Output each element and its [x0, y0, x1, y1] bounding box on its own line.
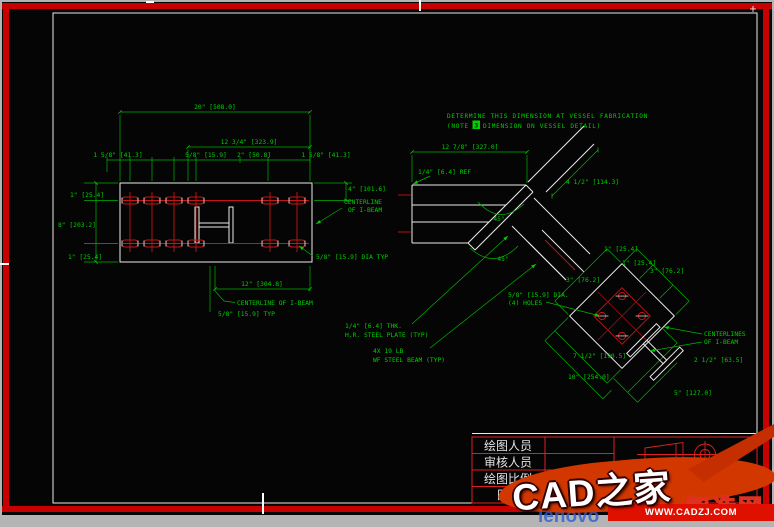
- cad-application-window: 20" [508.0] 12 3/4" [323.9] 1 5/8" [41.3…: [0, 0, 774, 527]
- dim-label: 2 1/2" [63.5]: [694, 357, 743, 364]
- dim-label: 1" [25.4]: [622, 260, 656, 267]
- hole-note: 5/8" [15.9] DIA TYP: [316, 254, 388, 261]
- title-row-drafter: 绘图人员: [484, 438, 532, 453]
- dim-label: 12" [304.8]: [241, 281, 283, 288]
- dim-label: 3" [76.2]: [650, 268, 684, 275]
- dim-label: 4" [101.6]: [348, 186, 386, 193]
- dim-label: 1 5/8" [41.3]: [301, 152, 350, 159]
- ref-note: 1/4" [6.4] REF: [418, 169, 471, 176]
- centerline-label: CENTERLINE: [344, 199, 382, 206]
- viewport-tick-left: [0, 263, 9, 265]
- dim-label: 4 1/2" [114.3]: [566, 179, 619, 186]
- typ-note: 5/8" [15.9] TYP: [218, 311, 275, 318]
- fabrication-note: DETERMINE THIS DIMENSION AT VESSEL FABRI…: [447, 113, 648, 120]
- title-row-date: 日期: [496, 488, 520, 502]
- beam-note: 4X 19 LB: [373, 348, 404, 355]
- dim-label: 3" [76.2]: [566, 277, 600, 284]
- dim-label: 8" [203.2]: [58, 222, 96, 229]
- beam-note: WF STEEL BEAM (TYP): [373, 357, 445, 364]
- viewport-tick-top: [419, 0, 421, 11]
- plate-note: H.R. STEEL PLATE (TYP): [345, 332, 428, 339]
- centerline-label: OF I-BEAM: [348, 207, 382, 214]
- dim-label: 7 1/2" [190.5]: [573, 353, 626, 360]
- dim-label: 1" [25.4]: [68, 254, 102, 261]
- dim-label: 1" [25.4]: [604, 246, 638, 253]
- title-row-reviewer: 审核人员: [484, 455, 532, 470]
- dim-label: 12 3/4" [323.9]: [221, 139, 278, 146]
- dim-label: 5" [127.0]: [674, 390, 712, 397]
- viewport-tick-top-left: [146, 1, 154, 3]
- angle-label: 45°: [497, 255, 508, 263]
- cad-canvas[interactable]: 20" [508.0] 12 3/4" [323.9] 1 5/8" [41.3…: [0, 0, 774, 527]
- dim-label: 2" [50.8]: [237, 152, 271, 159]
- centerline-label: CENTERLINE OF I-BEAM: [237, 300, 313, 307]
- fabrication-note: DIMENSION ON VESSEL DETAIL): [483, 123, 601, 130]
- note-number: 3: [474, 123, 478, 130]
- plate-note: 1/4" [6.4] THK.: [345, 323, 402, 330]
- holes-note: 5/8" [15.9] DIA.: [508, 292, 569, 299]
- company-name: 广州中望龙腾软件: [617, 483, 721, 499]
- dim-label: 20" [508.0]: [194, 104, 236, 111]
- dim-label: 12 7/8" [327.0]: [442, 144, 499, 151]
- dim-label: 5/8" [15.9]: [185, 152, 227, 159]
- viewport-tick-bottom: [262, 493, 264, 514]
- dim-label: 1" [25.4]: [70, 192, 104, 199]
- dim-label: 10" [254.0]: [568, 374, 610, 381]
- centerline-label: CENTERLINES: [704, 331, 746, 338]
- fabrication-note: (NOTE: [447, 123, 469, 130]
- title-row-scale: 绘图比例: [484, 471, 532, 486]
- holes-note: (4) HOLES: [508, 300, 542, 307]
- dim-label: 1 5/8" [41.3]: [93, 152, 142, 159]
- angle-label: 45°: [493, 215, 504, 223]
- centerline-label: OF I-BEAM: [704, 339, 738, 346]
